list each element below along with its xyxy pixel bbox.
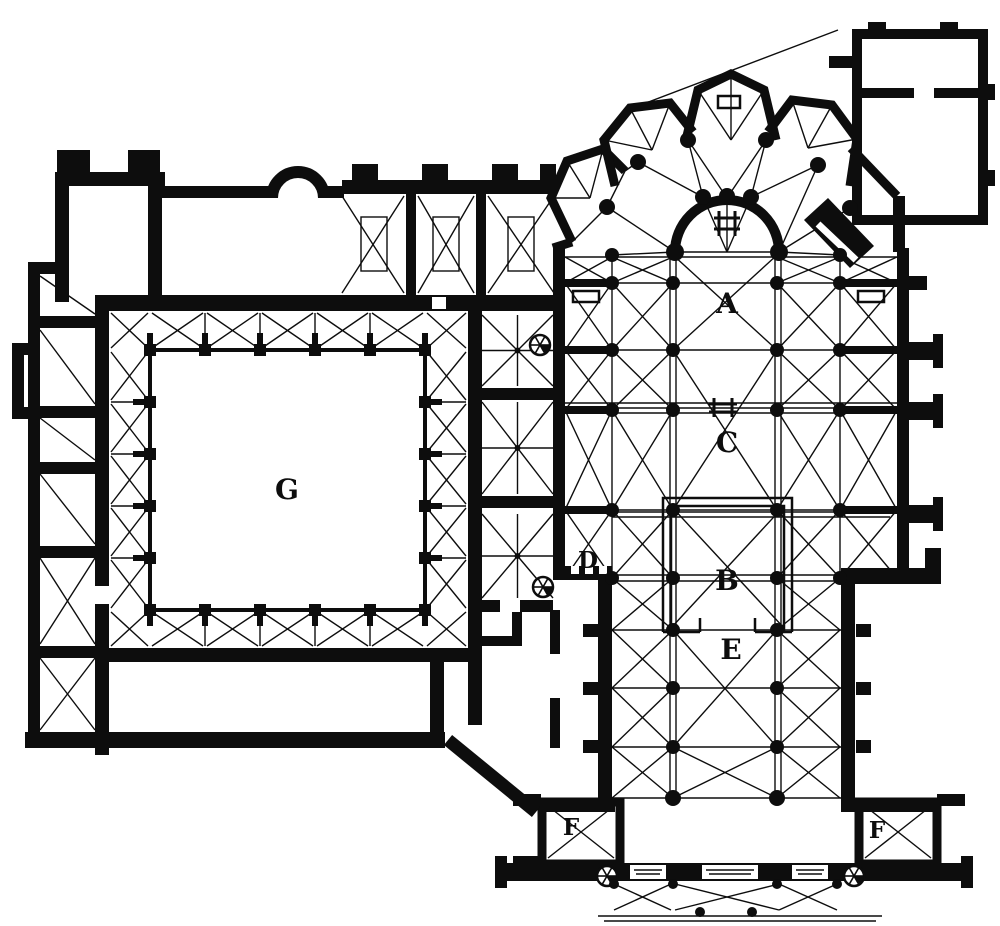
wall-segment bbox=[983, 170, 995, 186]
wall-segment bbox=[933, 497, 943, 531]
pier-dot bbox=[668, 879, 678, 889]
wall-segment bbox=[598, 578, 612, 808]
vault-rib bbox=[688, 140, 727, 198]
wall-segment bbox=[342, 180, 556, 194]
garth-pier bbox=[199, 344, 211, 356]
pier-dot bbox=[605, 343, 619, 357]
wall-segment bbox=[40, 546, 95, 558]
wall-segment bbox=[25, 732, 445, 748]
wall-segment bbox=[840, 506, 897, 514]
wall-segment bbox=[540, 164, 556, 180]
door-opening bbox=[792, 865, 828, 879]
wall-segment bbox=[148, 186, 162, 295]
garth-pier-tick bbox=[431, 451, 442, 457]
garth-pier-tick bbox=[431, 555, 442, 561]
wall-segment bbox=[95, 648, 475, 662]
garth-pier-tick bbox=[133, 503, 144, 509]
pier-dot bbox=[666, 623, 680, 637]
altar-symbol bbox=[718, 96, 740, 108]
pier-dot bbox=[666, 276, 680, 290]
door-opening bbox=[702, 865, 758, 879]
pier-dot bbox=[605, 248, 619, 262]
vault-rib bbox=[567, 161, 590, 198]
pier-dot bbox=[770, 403, 784, 417]
garth-pier-tick bbox=[431, 503, 442, 509]
wall-segment bbox=[909, 342, 935, 360]
wall-segment bbox=[909, 505, 935, 523]
pier-dot bbox=[666, 503, 680, 517]
pier-dot bbox=[666, 343, 680, 357]
garth-pier-tick bbox=[422, 333, 428, 344]
vault-rib bbox=[40, 330, 95, 404]
vault-rib bbox=[808, 139, 857, 148]
wall-segment bbox=[40, 406, 95, 418]
vault-rib bbox=[779, 165, 818, 252]
wall-segment bbox=[829, 56, 857, 68]
vault-rib bbox=[604, 140, 652, 150]
wall-segment bbox=[583, 624, 598, 637]
wall-segment bbox=[40, 462, 95, 474]
garth-pier-tick bbox=[422, 615, 428, 626]
pier-dot bbox=[599, 199, 615, 215]
garth-pier bbox=[419, 396, 431, 408]
wall-segment bbox=[40, 646, 95, 658]
label-d: D bbox=[578, 547, 598, 574]
pier-dot bbox=[666, 740, 680, 754]
pier-dot bbox=[666, 403, 680, 417]
wall-segment bbox=[513, 794, 541, 806]
wall-segment bbox=[482, 496, 553, 508]
pier-dot bbox=[833, 276, 847, 290]
garth-pier-tick bbox=[431, 399, 442, 405]
wall-segment bbox=[868, 22, 886, 36]
wall-segment bbox=[100, 295, 555, 311]
floor-plan-page: A B C D E F F G bbox=[0, 0, 1000, 926]
walls bbox=[12, 22, 995, 888]
star-vault-boss bbox=[515, 553, 521, 559]
wall-segment bbox=[482, 636, 522, 646]
garth-pier bbox=[419, 604, 431, 616]
garth-pier-tick bbox=[202, 333, 208, 344]
garth-pier bbox=[419, 552, 431, 564]
wall-segment bbox=[28, 262, 40, 748]
wall-segment bbox=[324, 186, 344, 198]
vault-rib bbox=[612, 252, 675, 255]
vault-rib bbox=[792, 100, 808, 148]
wall-segment bbox=[935, 863, 963, 881]
pier-dot bbox=[666, 243, 684, 261]
vault-rib bbox=[40, 474, 95, 544]
pier-dot bbox=[770, 343, 784, 357]
wall-segment bbox=[583, 682, 598, 695]
wall-segment bbox=[909, 276, 927, 290]
vault-rib bbox=[688, 140, 703, 197]
door-opening bbox=[432, 297, 446, 309]
label-a: A bbox=[715, 287, 739, 320]
garth-pier bbox=[364, 604, 376, 616]
pier-dot bbox=[747, 907, 757, 917]
vault-rib bbox=[638, 162, 703, 197]
garth-pier-tick bbox=[147, 615, 153, 626]
door-opening bbox=[630, 865, 666, 879]
sacristy-outline bbox=[857, 34, 983, 220]
piers bbox=[133, 132, 858, 917]
garth-pier bbox=[254, 344, 266, 356]
wall-segment bbox=[940, 22, 958, 36]
wall-segment bbox=[583, 740, 598, 753]
wall-segment bbox=[897, 248, 909, 580]
pier-dot bbox=[772, 879, 782, 889]
garth-pier bbox=[144, 500, 156, 512]
wall-segment bbox=[162, 186, 272, 198]
vault-rib bbox=[779, 252, 840, 255]
wall-segment bbox=[352, 164, 378, 180]
garth-pier bbox=[144, 396, 156, 408]
vault-ribs bbox=[40, 30, 931, 921]
wall-segment bbox=[933, 334, 943, 368]
wall-segment bbox=[565, 406, 612, 414]
altar-symbol bbox=[858, 291, 884, 302]
cathedral-floor-plan: A B C D E F F G bbox=[0, 0, 1000, 926]
garth-pier bbox=[419, 500, 431, 512]
vault-rib bbox=[751, 140, 766, 197]
label-g: G bbox=[275, 473, 299, 506]
wall-segment bbox=[937, 794, 965, 806]
wall-segment bbox=[550, 698, 560, 748]
wall-segment bbox=[422, 164, 448, 180]
wall-segment bbox=[495, 856, 507, 888]
wall-segment bbox=[909, 402, 935, 420]
wall-segment bbox=[55, 186, 69, 302]
wall-segment bbox=[961, 856, 973, 888]
vault-rib bbox=[808, 105, 832, 148]
garth-pier-tick bbox=[367, 615, 373, 626]
vault-rib bbox=[727, 140, 766, 198]
wall-segment bbox=[55, 172, 165, 186]
pier-dot bbox=[605, 403, 619, 417]
garth-pier-tick bbox=[312, 333, 318, 344]
pier-dot bbox=[609, 879, 619, 889]
garth-pier-tick bbox=[257, 615, 263, 626]
wall-segment bbox=[841, 568, 941, 584]
wall-segment bbox=[841, 578, 855, 808]
garth-pier bbox=[144, 604, 156, 616]
garth-pier-tick bbox=[147, 333, 153, 344]
garth-pier bbox=[419, 344, 431, 356]
pier-dot bbox=[605, 276, 619, 290]
garth-pier bbox=[144, 344, 156, 356]
wall-segment bbox=[856, 624, 871, 637]
wall-segment bbox=[40, 316, 95, 328]
wall-segment bbox=[840, 279, 897, 287]
garth-pier bbox=[364, 344, 376, 356]
garth-pier bbox=[144, 552, 156, 564]
wall-segment bbox=[840, 346, 897, 354]
wall-segment bbox=[983, 84, 995, 100]
vault-rib bbox=[630, 108, 652, 150]
garth-pier bbox=[254, 604, 266, 616]
wall-segment bbox=[540, 798, 615, 812]
wall-segment bbox=[840, 406, 897, 414]
garth-pier-tick bbox=[312, 615, 318, 626]
vault-rib bbox=[731, 90, 764, 140]
label-f-left: F bbox=[563, 814, 580, 841]
wall-segment bbox=[430, 662, 444, 736]
wall-segment bbox=[406, 194, 416, 295]
wall-segment bbox=[476, 194, 486, 295]
pier-dot bbox=[695, 907, 705, 917]
garth-pier-tick bbox=[133, 555, 144, 561]
wall-segment bbox=[482, 388, 553, 400]
garth-pier bbox=[309, 344, 321, 356]
pier-dot bbox=[666, 681, 680, 695]
star-vault-boss bbox=[515, 445, 521, 451]
pier-dot bbox=[758, 132, 774, 148]
wall-segment bbox=[28, 262, 68, 274]
wall-segment bbox=[513, 856, 541, 868]
pier-dot bbox=[770, 623, 784, 637]
wall-segment bbox=[468, 311, 482, 611]
pier-dot bbox=[665, 790, 681, 806]
garth-pier bbox=[144, 448, 156, 460]
garth-pier-tick bbox=[202, 615, 208, 626]
pier-dot bbox=[770, 243, 788, 261]
garth-pier-tick bbox=[133, 451, 144, 457]
pier-dot bbox=[770, 276, 784, 290]
pier-dot bbox=[695, 189, 711, 205]
wall-segment bbox=[468, 600, 482, 725]
garth-pier bbox=[309, 604, 321, 616]
pier-dot bbox=[833, 403, 847, 417]
cloister-arch-niche bbox=[272, 172, 324, 198]
vault-rib bbox=[652, 103, 670, 150]
vault-rib bbox=[751, 165, 818, 197]
door-opening bbox=[599, 566, 607, 574]
pier-dot bbox=[810, 157, 826, 173]
wall-segment bbox=[856, 682, 871, 695]
pier-dot bbox=[833, 343, 847, 357]
pier-dot bbox=[833, 571, 847, 585]
chevet-west-stub-wall bbox=[553, 242, 572, 248]
door-opening bbox=[500, 600, 520, 612]
pier-dot bbox=[770, 571, 784, 585]
pier-dot bbox=[842, 200, 858, 216]
wall-segment bbox=[933, 394, 943, 428]
pier-dot bbox=[743, 189, 759, 205]
label-f-right: F bbox=[869, 817, 886, 844]
pier-dot bbox=[719, 188, 735, 204]
pier-dot bbox=[832, 879, 842, 889]
chevet-chapel-wall bbox=[768, 100, 857, 186]
door-opening bbox=[95, 586, 109, 604]
pier-dot bbox=[833, 503, 847, 517]
label-c: C bbox=[716, 426, 738, 459]
vault-rib bbox=[607, 207, 675, 252]
wall-segment bbox=[57, 150, 90, 172]
wall-segment bbox=[565, 506, 612, 514]
vault-rib bbox=[40, 418, 95, 460]
pier-dot bbox=[770, 503, 784, 517]
pier-dot bbox=[630, 154, 646, 170]
star-vault-boss bbox=[515, 348, 521, 354]
pier-dot bbox=[769, 790, 785, 806]
garth-pier bbox=[199, 604, 211, 616]
wall-segment bbox=[128, 150, 160, 172]
pier-dot bbox=[680, 132, 696, 148]
garth-pier-tick bbox=[133, 399, 144, 405]
vault-rib bbox=[698, 90, 731, 140]
garth-pier bbox=[419, 448, 431, 460]
wall-segment bbox=[925, 548, 941, 568]
wall-segment bbox=[893, 196, 905, 252]
wall-segment bbox=[565, 346, 612, 354]
wall-segment bbox=[856, 740, 871, 753]
pier-dot bbox=[770, 681, 784, 695]
wall-segment bbox=[565, 279, 612, 287]
wall-segment bbox=[95, 295, 109, 755]
pier-dot bbox=[770, 740, 784, 754]
wall-segment bbox=[841, 798, 937, 812]
label-e: E bbox=[720, 633, 741, 666]
wall-segment bbox=[550, 610, 560, 654]
garth-pier-tick bbox=[257, 333, 263, 344]
pier-dot bbox=[666, 571, 680, 585]
wall-segment bbox=[12, 343, 24, 419]
pier-dot bbox=[833, 248, 847, 262]
pier-dot bbox=[605, 503, 619, 517]
wall-segment bbox=[862, 88, 914, 98]
garth-pier-tick bbox=[367, 333, 373, 344]
label-b: B bbox=[715, 564, 739, 597]
wall-segment bbox=[934, 88, 980, 98]
pier-dot bbox=[605, 571, 619, 585]
wall-segment bbox=[492, 164, 518, 180]
